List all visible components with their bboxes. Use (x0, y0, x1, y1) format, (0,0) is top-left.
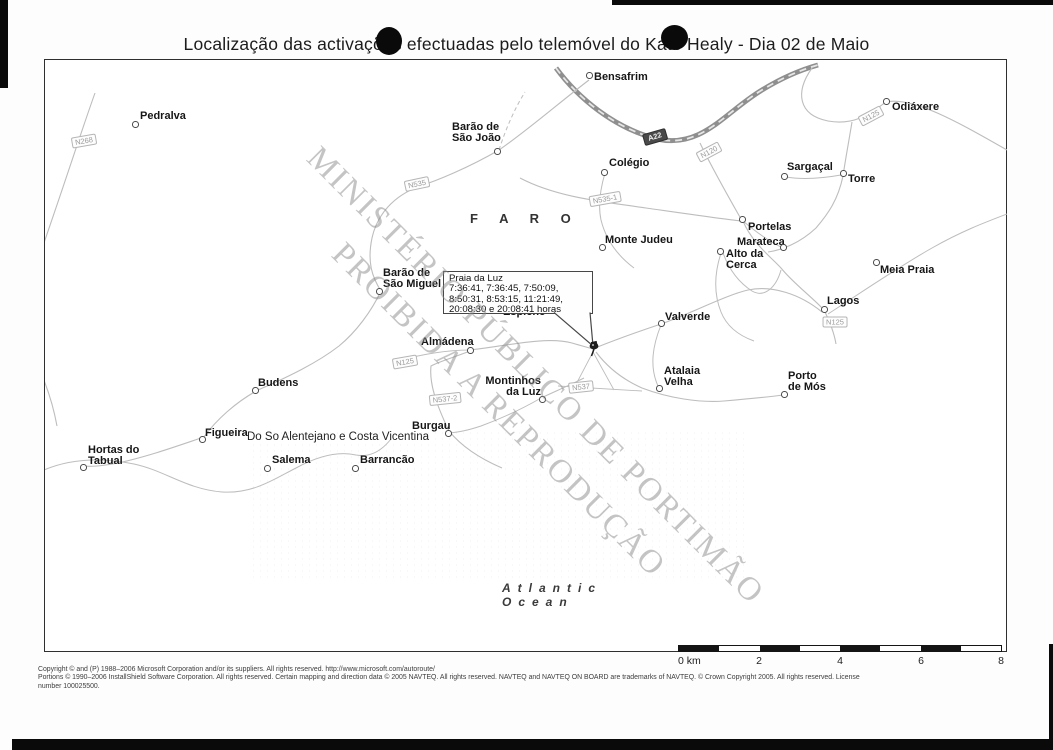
hole-punch-artifact (661, 25, 688, 50)
scale-label-0km: 0 km (678, 655, 701, 667)
scale-bar (678, 645, 1002, 652)
scale-label-2: 2 (756, 655, 762, 667)
scan-edge-artifact-top (612, 0, 1053, 5)
scale-bar-segment (921, 646, 961, 651)
callout-pointer (554, 312, 593, 346)
scale-bar-segment (840, 646, 880, 651)
scale-bar-segment (760, 646, 800, 651)
scale-bar-segment (719, 646, 759, 651)
scan-edge-artifact-bottom (12, 739, 1053, 750)
scale-bar-segment (880, 646, 920, 651)
scan-edge-artifact-left (0, 0, 8, 88)
scanned-map-page: Localização das activações efectuadas pe… (0, 0, 1053, 750)
scan-edge-artifact-right (1049, 644, 1053, 744)
scale-label-8: 8 (998, 655, 1004, 667)
scale-bar-segment (800, 646, 840, 651)
scale-bar-segment (679, 646, 719, 651)
hole-punch-artifact (376, 27, 402, 55)
scale-bar-segment (961, 646, 1001, 651)
scale-label-4: 4 (837, 655, 843, 667)
scale-label-6: 6 (918, 655, 924, 667)
